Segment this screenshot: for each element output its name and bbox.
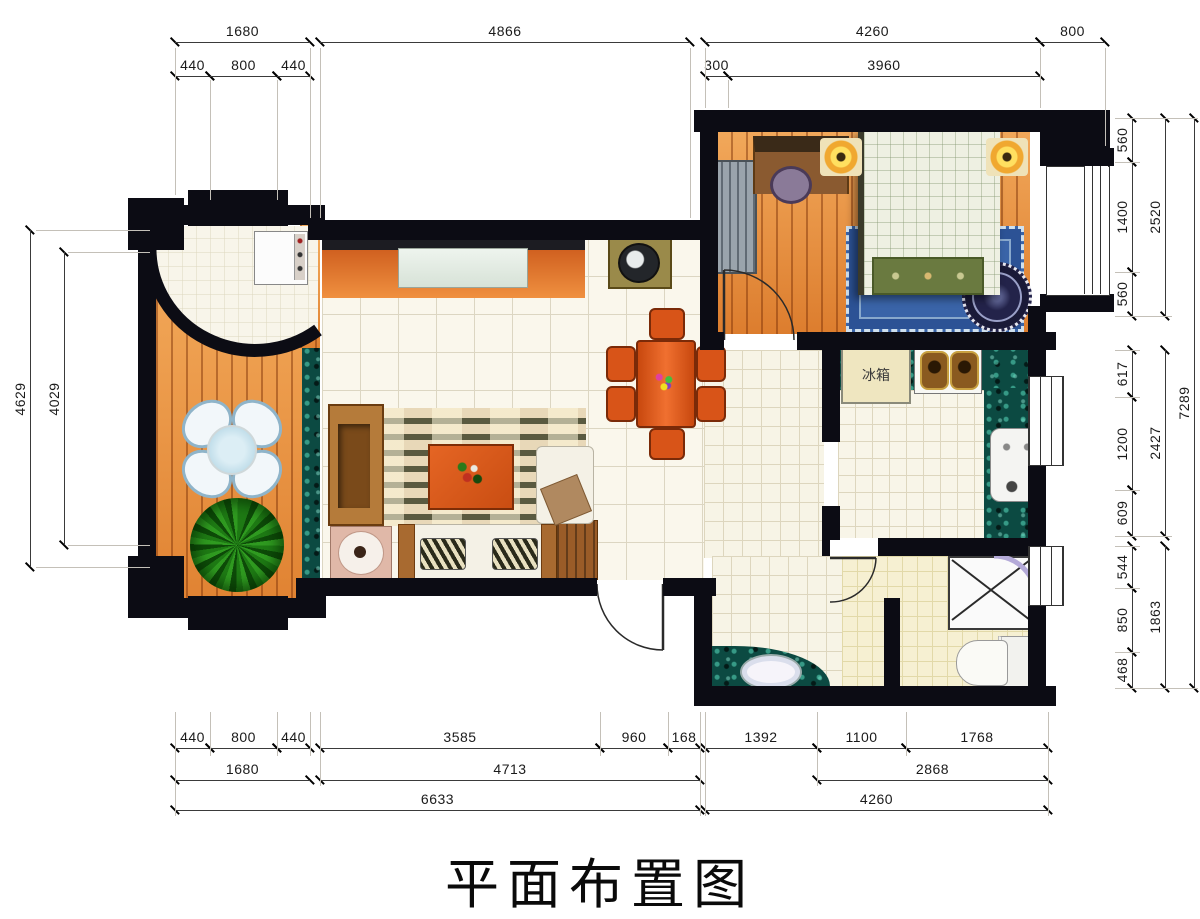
dimension-label: 1400 <box>1114 200 1130 233</box>
dimension-label: 1392 <box>744 729 777 745</box>
dimension-line <box>600 748 668 749</box>
dimension-line <box>175 76 210 77</box>
dimension-label: 168 <box>672 729 697 745</box>
extension-line <box>705 48 706 108</box>
extension-line <box>906 712 907 756</box>
dimension-line <box>705 748 817 749</box>
extension-line <box>1115 397 1140 398</box>
dimension-line <box>277 76 310 77</box>
dimension-label: 4629 <box>12 382 28 415</box>
dimension-line <box>705 810 1048 811</box>
dimension-line <box>277 748 310 749</box>
extension-line <box>1048 712 1049 816</box>
dimension-line <box>175 748 210 749</box>
extension-line <box>210 712 211 756</box>
dimension-label: 1100 <box>845 729 877 745</box>
dimension-label: 2520 <box>1147 200 1163 233</box>
extension-line <box>1115 118 1198 119</box>
floor-plan-canvas: 冰箱 <box>0 0 1200 919</box>
dimension-label: 4260 <box>856 23 889 39</box>
extension-line <box>175 48 176 195</box>
dimension-line <box>817 748 906 749</box>
extension-line <box>728 80 729 108</box>
dimension-line <box>1165 350 1166 536</box>
extension-line <box>277 80 278 200</box>
dimension-line <box>210 76 277 77</box>
dimension-line <box>1165 118 1166 316</box>
extension-line <box>1105 48 1106 146</box>
extension-line <box>600 712 601 756</box>
dimension-line <box>1132 162 1133 272</box>
dimension-label: 4260 <box>860 791 893 807</box>
dimension-label: 960 <box>622 729 647 745</box>
dimension-label: 1680 <box>226 23 259 39</box>
extension-line <box>1115 688 1198 689</box>
dimension-line <box>1194 118 1195 688</box>
extension-line <box>68 545 150 546</box>
dimension-line <box>1132 397 1133 490</box>
dimension-label: 1200 <box>1114 427 1130 460</box>
dimension-label: 1863 <box>1147 600 1163 633</box>
extension-line <box>1115 350 1140 351</box>
dimension-label: 544 <box>1114 555 1130 580</box>
dimension-line <box>320 748 600 749</box>
dimension-label: 800 <box>231 729 256 745</box>
extension-line <box>310 48 311 218</box>
dimension-line <box>175 780 310 781</box>
dimension-label: 1768 <box>960 729 993 745</box>
extension-line <box>705 712 706 816</box>
dimension-label: 3585 <box>443 729 476 745</box>
dimension-layer: 1680486642608004408004403003960462940295… <box>0 0 1200 919</box>
dimension-line <box>1132 546 1133 588</box>
dimension-label: 2868 <box>916 761 949 777</box>
dimension-line <box>906 748 1048 749</box>
extension-line <box>1115 588 1140 589</box>
dimension-line <box>1165 546 1166 688</box>
extension-line <box>1115 546 1140 547</box>
extension-line <box>320 48 321 218</box>
dimension-label: 4713 <box>493 761 526 777</box>
dimension-line <box>1132 272 1133 316</box>
dimension-label: 800 <box>231 57 256 73</box>
extension-line <box>1115 536 1172 537</box>
dimension-line <box>175 42 310 43</box>
dimension-label: 800 <box>1060 23 1085 39</box>
dimension-label: 7289 <box>1176 386 1192 419</box>
extension-line <box>1115 162 1140 163</box>
dimension-line <box>1132 490 1133 536</box>
dimension-line <box>175 810 700 811</box>
extension-line <box>1115 316 1172 317</box>
dimension-line <box>668 748 700 749</box>
dimension-line <box>1132 350 1133 397</box>
extension-line <box>1115 652 1140 653</box>
dimension-label: 440 <box>281 57 306 73</box>
dimension-label: 560 <box>1114 282 1130 307</box>
dimension-line <box>1132 118 1133 162</box>
extension-line <box>68 252 150 253</box>
dimension-label: 3960 <box>867 57 900 73</box>
extension-line <box>668 712 669 756</box>
dimension-line <box>30 230 31 567</box>
dimension-line <box>1132 652 1133 688</box>
dimension-label: 300 <box>704 57 729 73</box>
dimension-line <box>817 780 1048 781</box>
extension-line <box>1115 490 1140 491</box>
dimension-line <box>64 252 65 545</box>
dimension-line <box>1040 42 1105 43</box>
extension-line <box>310 712 311 756</box>
dimension-line <box>320 42 690 43</box>
dimension-label: 6633 <box>421 791 454 807</box>
dimension-line <box>210 748 277 749</box>
extension-line <box>1040 48 1041 108</box>
extension-line <box>36 567 150 568</box>
extension-line <box>210 80 211 200</box>
extension-line <box>320 712 321 786</box>
dimension-label: 440 <box>180 729 205 745</box>
dimension-label: 440 <box>180 57 205 73</box>
extension-line <box>1115 272 1140 273</box>
dimension-label: 560 <box>1114 128 1130 153</box>
dimension-line <box>705 42 1040 43</box>
extension-line <box>36 230 150 231</box>
extension-line <box>690 48 691 218</box>
dimension-label: 468 <box>1114 658 1130 683</box>
dimension-line <box>1132 588 1133 652</box>
dimension-line <box>728 76 1040 77</box>
extension-line <box>817 712 818 786</box>
dimension-label: 4866 <box>488 23 521 39</box>
dimension-line <box>705 76 728 77</box>
dimension-label: 609 <box>1114 501 1130 526</box>
extension-line <box>277 712 278 756</box>
extension-line <box>175 712 176 816</box>
dimension-label: 440 <box>281 729 306 745</box>
dimension-label: 617 <box>1114 361 1130 386</box>
dimension-label: 2427 <box>1147 426 1163 459</box>
dimension-line <box>320 780 700 781</box>
dimension-label: 1680 <box>226 761 259 777</box>
dimension-label: 850 <box>1114 608 1130 633</box>
dimension-label: 4029 <box>46 382 62 415</box>
extension-line <box>700 712 701 816</box>
